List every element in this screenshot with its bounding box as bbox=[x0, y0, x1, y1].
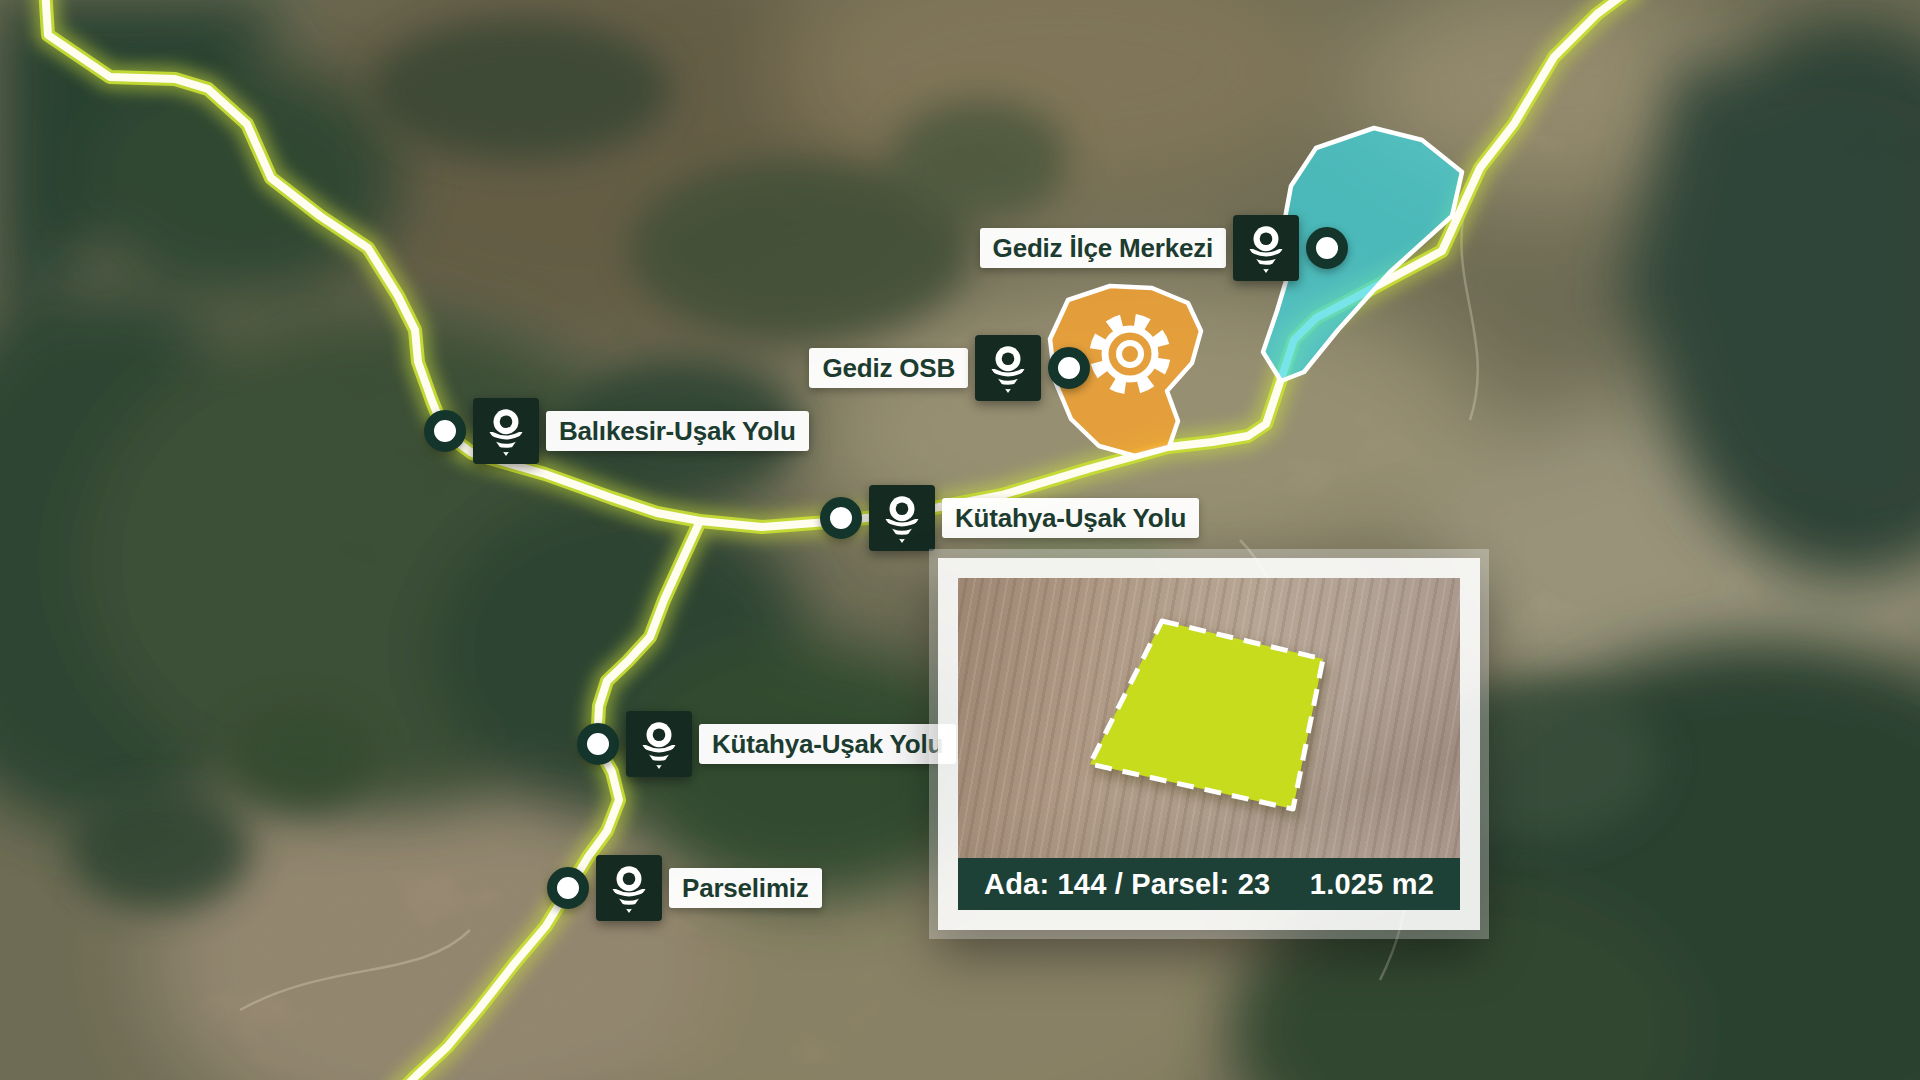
map-marker-kutahya-usak-yolu-2: Kütahya-Uşak Yolu bbox=[577, 711, 956, 777]
location-pin-icon bbox=[975, 335, 1041, 401]
marker-label: Kütahya-Uşak Yolu bbox=[942, 498, 1199, 538]
map-marker-gediz-osb: Gediz OSB bbox=[809, 335, 1090, 401]
ring-marker bbox=[820, 497, 862, 539]
map-marker-gediz-ilce-merkezi: Gediz İlçe Merkezi bbox=[980, 215, 1348, 281]
marker-label: Gediz İlçe Merkezi bbox=[980, 228, 1226, 268]
parcel-aerial-image bbox=[958, 578, 1460, 858]
map-marker-balikesir-usak-yolu: Balıkesir-Uşak Yolu bbox=[424, 398, 809, 464]
ring-marker bbox=[1306, 227, 1348, 269]
marker-label: Parselimiz bbox=[669, 868, 822, 908]
parcel-block-lot: Ada: 144 / Parsel: 23 bbox=[984, 868, 1270, 901]
location-pin-icon bbox=[596, 855, 662, 921]
parcel-inset-panel: Ada: 144 / Parsel: 23 1.025 m2 bbox=[938, 558, 1480, 930]
location-pin-icon bbox=[1233, 215, 1299, 281]
ring-marker bbox=[424, 410, 466, 452]
marker-label: Kütahya-Uşak Yolu bbox=[699, 724, 956, 764]
map-marker-kutahya-usak-yolu-1: Kütahya-Uşak Yolu bbox=[820, 485, 1199, 551]
map-canvas: Gediz İlçe Merkezi Gediz OSB Balıkesir-U… bbox=[0, 0, 1920, 1080]
ring-marker bbox=[547, 867, 589, 909]
parcel-info-bar: Ada: 144 / Parsel: 23 1.025 m2 bbox=[958, 858, 1460, 910]
map-marker-parselimiz: Parselimiz bbox=[547, 855, 822, 921]
parcel-boundary bbox=[1090, 621, 1323, 809]
location-pin-icon bbox=[473, 398, 539, 464]
marker-label: Balıkesir-Uşak Yolu bbox=[546, 411, 809, 451]
location-pin-icon bbox=[626, 711, 692, 777]
marker-label: Gediz OSB bbox=[809, 348, 968, 388]
ring-marker bbox=[577, 723, 619, 765]
location-pin-icon bbox=[869, 485, 935, 551]
parcel-area: 1.025 m2 bbox=[1310, 868, 1434, 901]
ring-marker bbox=[1048, 347, 1090, 389]
